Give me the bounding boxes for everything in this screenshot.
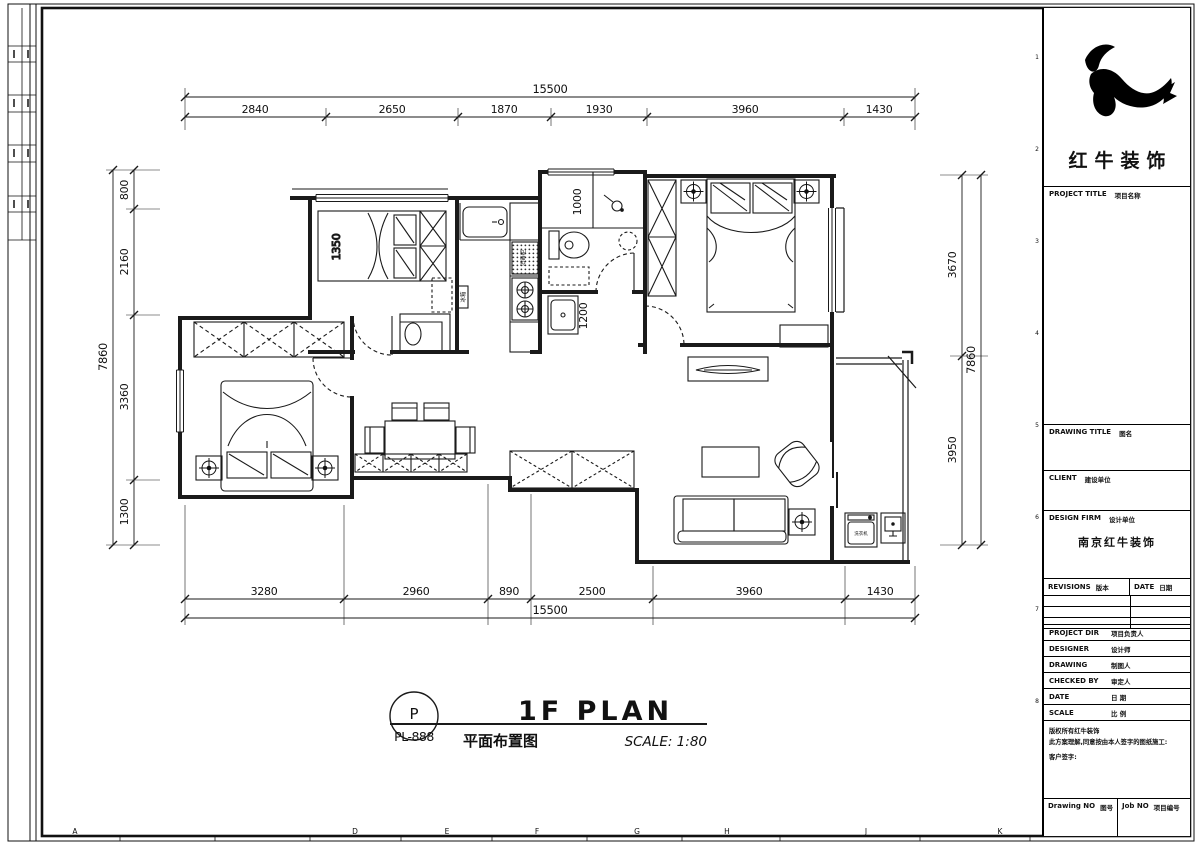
dining-area — [355, 403, 634, 488]
revisions-table: REVISIONS 版本 DATE 日期 — [1044, 578, 1190, 629]
children-room: 1350 — [318, 211, 452, 352]
design-firm-label-zh: 设计单位 — [1109, 514, 1135, 524]
svg-text:4: 4 — [1035, 330, 1039, 337]
drawing-no-label-zh: 图号 — [1100, 802, 1113, 812]
washer-dim: 1200 — [577, 302, 590, 329]
children-desk — [400, 314, 450, 352]
design-firm-section: DESIGN FIRM 设计单位 南京红牛装饰 — [1044, 510, 1190, 578]
company-logo-block: 红牛装饰 — [1044, 8, 1190, 186]
drawing-sheet: A D E F G H J K 1 2 3 4 5 6 7 8 — [0, 0, 1200, 844]
svg-text:7860: 7860 — [964, 346, 978, 374]
tv-cabinet — [688, 357, 768, 381]
floor-lamp — [789, 509, 815, 535]
job-no-label-zh: 项目编号 — [1154, 802, 1180, 812]
dimensions-bottom: 3280 2960 890 2500 3960 1430 15500 — [181, 484, 919, 625]
company-name: 红牛装饰 — [1044, 146, 1190, 173]
armchair — [771, 438, 822, 490]
svg-text:3960: 3960 — [732, 103, 759, 116]
date-col-label-en: DATE — [1134, 583, 1154, 591]
client-signature-label: 客户签字: — [1049, 752, 1185, 763]
drawing-no-label-en: Drawing NO — [1048, 802, 1095, 810]
walls — [180, 172, 908, 562]
checked-by-row: CHECKED BY 审定人 — [1044, 672, 1190, 688]
ref-letter: P — [409, 705, 418, 723]
windows — [176, 168, 917, 560]
svg-text:洗衣机: 洗衣机 — [854, 530, 868, 537]
living-room — [674, 357, 837, 544]
copyright-line1: 版权所有红牛装饰 — [1049, 726, 1185, 737]
master-bedroom — [648, 179, 828, 347]
copyright-notes: 版权所有红牛装饰 此方案理解,同意按由本人签字的图纸施工: 客户签字: — [1044, 720, 1190, 798]
date-col-label-zh: 日期 — [1159, 582, 1172, 592]
svg-text:J: J — [864, 827, 867, 836]
revision-row — [1044, 607, 1190, 618]
master-bed — [707, 179, 795, 312]
svg-text:K: K — [998, 827, 1004, 836]
svg-text:F: F — [535, 827, 539, 836]
dimensions-left: 800 2160 3360 1300 7860 — [96, 166, 160, 549]
bay-window — [828, 208, 845, 312]
washing-machine-nook — [548, 296, 578, 334]
low-cabinet — [510, 451, 634, 488]
toilet — [549, 231, 589, 259]
svg-text:15500: 15500 — [532, 82, 567, 96]
svg-text:3670: 3670 — [946, 251, 959, 278]
mop-sink — [881, 513, 905, 543]
door-bedroom2 — [313, 358, 352, 397]
svg-text:E: E — [445, 827, 450, 836]
grid-numbers: 1 2 3 4 5 6 7 8 — [1035, 54, 1039, 705]
dimensions-right: 3670 3950 7860 — [940, 171, 988, 549]
bedroom2-bed — [221, 381, 313, 491]
client-label-en: CLIENT — [1049, 474, 1077, 482]
svg-text:2160: 2160 — [118, 248, 131, 275]
svg-text:G: G — [634, 827, 640, 836]
project-title-label-en: PROJECT TITLE — [1049, 190, 1107, 198]
svg-text:2: 2 — [1035, 146, 1039, 153]
job-no-label-en: Job NO — [1122, 802, 1149, 810]
dimensions-top: 15500 2840 2650 1870 1930 3960 1430 — [181, 82, 919, 130]
revisions-label-zh: 版本 — [1096, 582, 1109, 592]
coffee-table — [702, 447, 759, 477]
bedroom2-nightstand-right — [312, 456, 338, 480]
door-master-bedroom — [645, 306, 684, 345]
bedroom2-nightstand-left — [196, 456, 222, 480]
svg-text:1430: 1430 — [867, 585, 894, 598]
drawing-row: DRAWING 制图人 — [1044, 656, 1190, 672]
balcony-washer: 洗衣机 — [845, 513, 877, 547]
svg-text:3280: 3280 — [251, 585, 278, 598]
stove — [512, 278, 538, 320]
plan-subtitle: 平面布置图 — [463, 732, 538, 750]
master-wardrobe — [648, 180, 676, 296]
svg-text:1930: 1930 — [586, 103, 613, 116]
door-children-room — [353, 316, 392, 355]
project-title-label-zh: 项目名称 — [1115, 190, 1141, 200]
kitchen-sink — [463, 207, 507, 237]
svg-text:1: 1 — [1035, 54, 1039, 61]
svg-text:冰箱: 冰箱 — [459, 291, 467, 303]
drawing-title-label-en: DRAWING TITLE — [1049, 428, 1111, 436]
kitchen: 消毒柜 冰箱 — [457, 203, 540, 352]
svg-text:H: H — [724, 827, 730, 836]
window-bedroom2 — [176, 370, 185, 432]
children-bed-dim: 1350 — [330, 233, 343, 260]
project-title-section: PROJECT TITLE 项目名称 — [1044, 186, 1190, 424]
copyright-line2: 此方案理解,同意按由本人签字的图纸施工: — [1049, 737, 1185, 748]
dining-table — [385, 421, 455, 459]
drawing-number-row: Drawing NO 图号 Job NO 项目编号 — [1044, 798, 1190, 836]
svg-text:7860: 7860 — [96, 343, 110, 371]
svg-text:7: 7 — [1035, 606, 1039, 613]
balcony: 洗衣机 — [845, 513, 905, 547]
bath-mat — [549, 267, 589, 285]
fold-strip-table — [8, 8, 36, 240]
svg-text:890: 890 — [499, 585, 519, 598]
kitchen-cabinet-label: 消毒柜 — [519, 249, 527, 266]
ref-number: PL-888 — [394, 729, 434, 744]
date-row: DATE 日 期 — [1044, 688, 1190, 704]
client-label-zh: 建设单位 — [1085, 474, 1111, 484]
window-balcony-top — [836, 352, 916, 388]
client-section: CLIENT 建设单位 — [1044, 470, 1190, 510]
svg-text:5: 5 — [1035, 422, 1039, 429]
grid-letters: A D E F G H J K — [72, 827, 1003, 836]
svg-text:1430: 1430 — [866, 103, 893, 116]
svg-text:15500: 15500 — [532, 603, 567, 617]
svg-text:1300: 1300 — [118, 498, 131, 525]
svg-text:2840: 2840 — [242, 103, 269, 116]
revisions-label-en: REVISIONS — [1048, 583, 1091, 591]
designer-row: DESIGNER 设计师 — [1044, 640, 1190, 656]
svg-text:3360: 3360 — [118, 383, 131, 410]
shower-head — [604, 195, 623, 211]
sliding-door — [833, 442, 837, 508]
project-dir-row: PROJECT DIR 项目负责人 — [1044, 624, 1190, 640]
svg-text:8: 8 — [1035, 698, 1039, 705]
plan-scale: SCALE: 1:80 — [625, 734, 707, 750]
master-nightstand-right — [794, 180, 819, 203]
dining-chairs — [365, 403, 475, 453]
bull-logo-icon — [1057, 36, 1177, 126]
scale-row: SCALE 比 例 — [1044, 704, 1190, 720]
bathroom: 1000 1200 — [540, 172, 645, 334]
design-firm-value: 南京红牛装饰 — [1044, 534, 1190, 550]
svg-text:800: 800 — [118, 180, 131, 200]
svg-text:D: D — [352, 827, 358, 836]
svg-text:2500: 2500 — [579, 585, 606, 598]
second-bedroom — [194, 322, 344, 491]
shower-dim: 1000 — [571, 188, 584, 215]
svg-text:3: 3 — [1035, 238, 1039, 245]
water-heater — [619, 232, 637, 250]
design-firm-label-en: DESIGN FIRM — [1049, 514, 1101, 522]
plan-canvas: A D E F G H J K 1 2 3 4 5 6 7 8 — [0, 0, 1200, 844]
window-bath — [548, 168, 614, 176]
title-block: 红牛装饰 PROJECT TITLE 项目名称 DRAWING TITLE 图名… — [1042, 8, 1190, 836]
svg-text:2960: 2960 — [403, 585, 430, 598]
children-overhead-cabinet — [432, 278, 452, 312]
hall-cabinet-row — [355, 454, 467, 472]
drawing-title-label-zh: 图名 — [1119, 428, 1132, 438]
svg-text:6: 6 — [1035, 514, 1039, 521]
door-bathroom — [596, 253, 634, 292]
window-top — [292, 189, 448, 203]
revision-row — [1044, 596, 1190, 607]
sofa — [674, 496, 788, 544]
svg-text:3960: 3960 — [736, 585, 763, 598]
master-nightstand-left — [681, 180, 706, 203]
plan-title: P PL-888 1F PLAN 平面布置图 SCALE: 1:80 — [390, 692, 707, 750]
svg-text:3950: 3950 — [946, 436, 959, 463]
svg-text:1870: 1870 — [491, 103, 518, 116]
svg-text:A: A — [72, 827, 78, 836]
svg-text:2650: 2650 — [379, 103, 406, 116]
doors — [313, 253, 684, 397]
drawing-title-section: DRAWING TITLE 图名 — [1044, 424, 1190, 470]
children-wardrobe — [420, 211, 446, 281]
plan-title-text: 1F PLAN — [518, 696, 673, 727]
